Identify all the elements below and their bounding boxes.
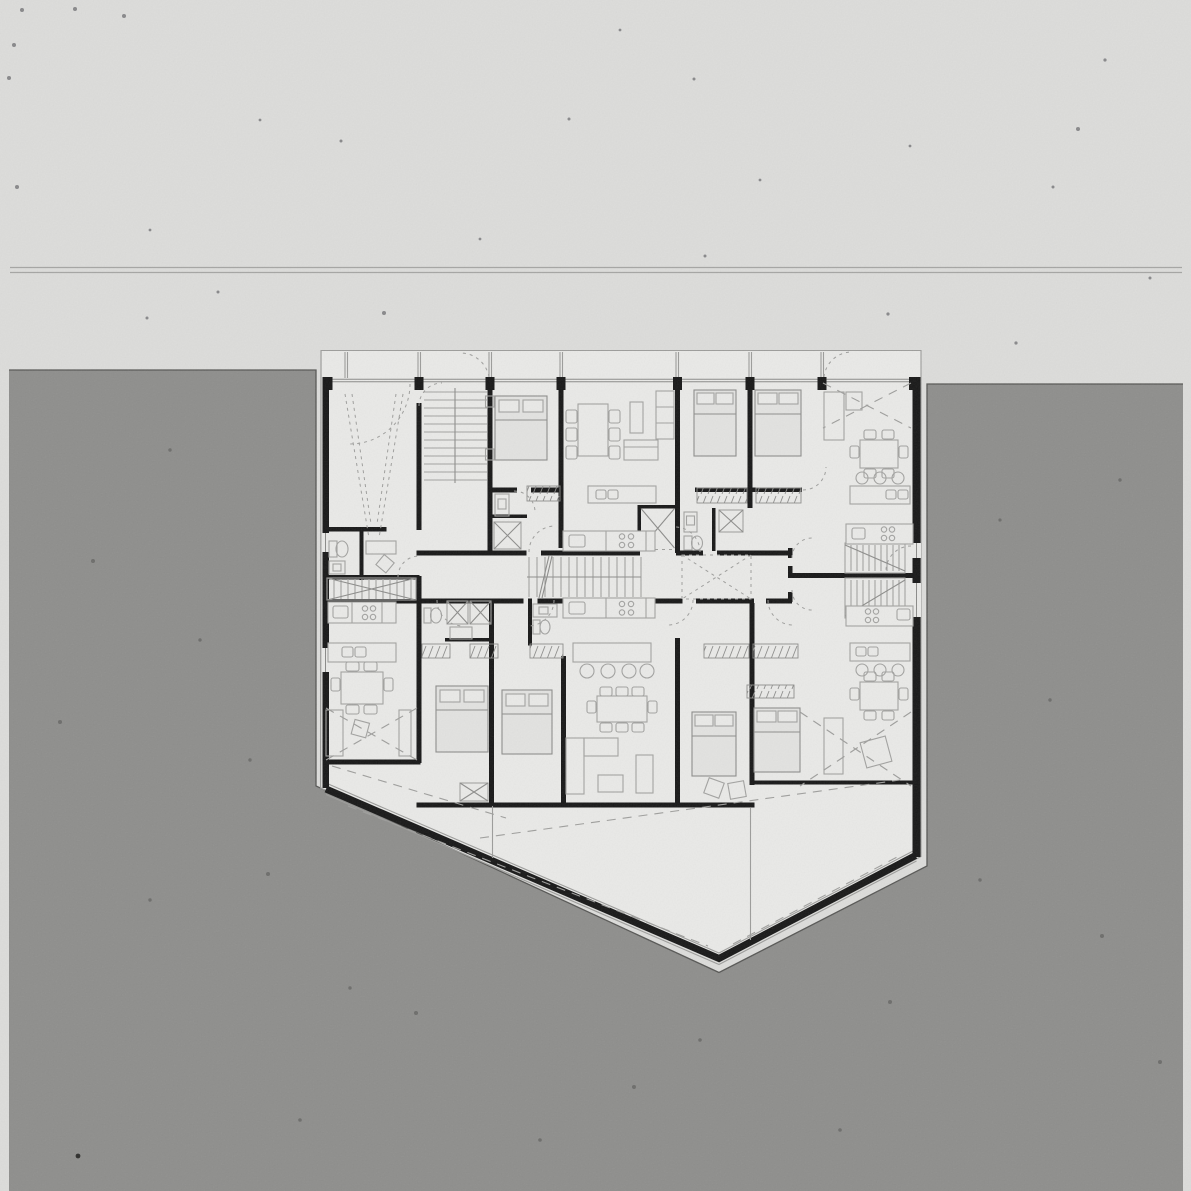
paper-grain [0, 0, 1191, 1191]
floor-plan-sheet [0, 0, 1191, 1191]
